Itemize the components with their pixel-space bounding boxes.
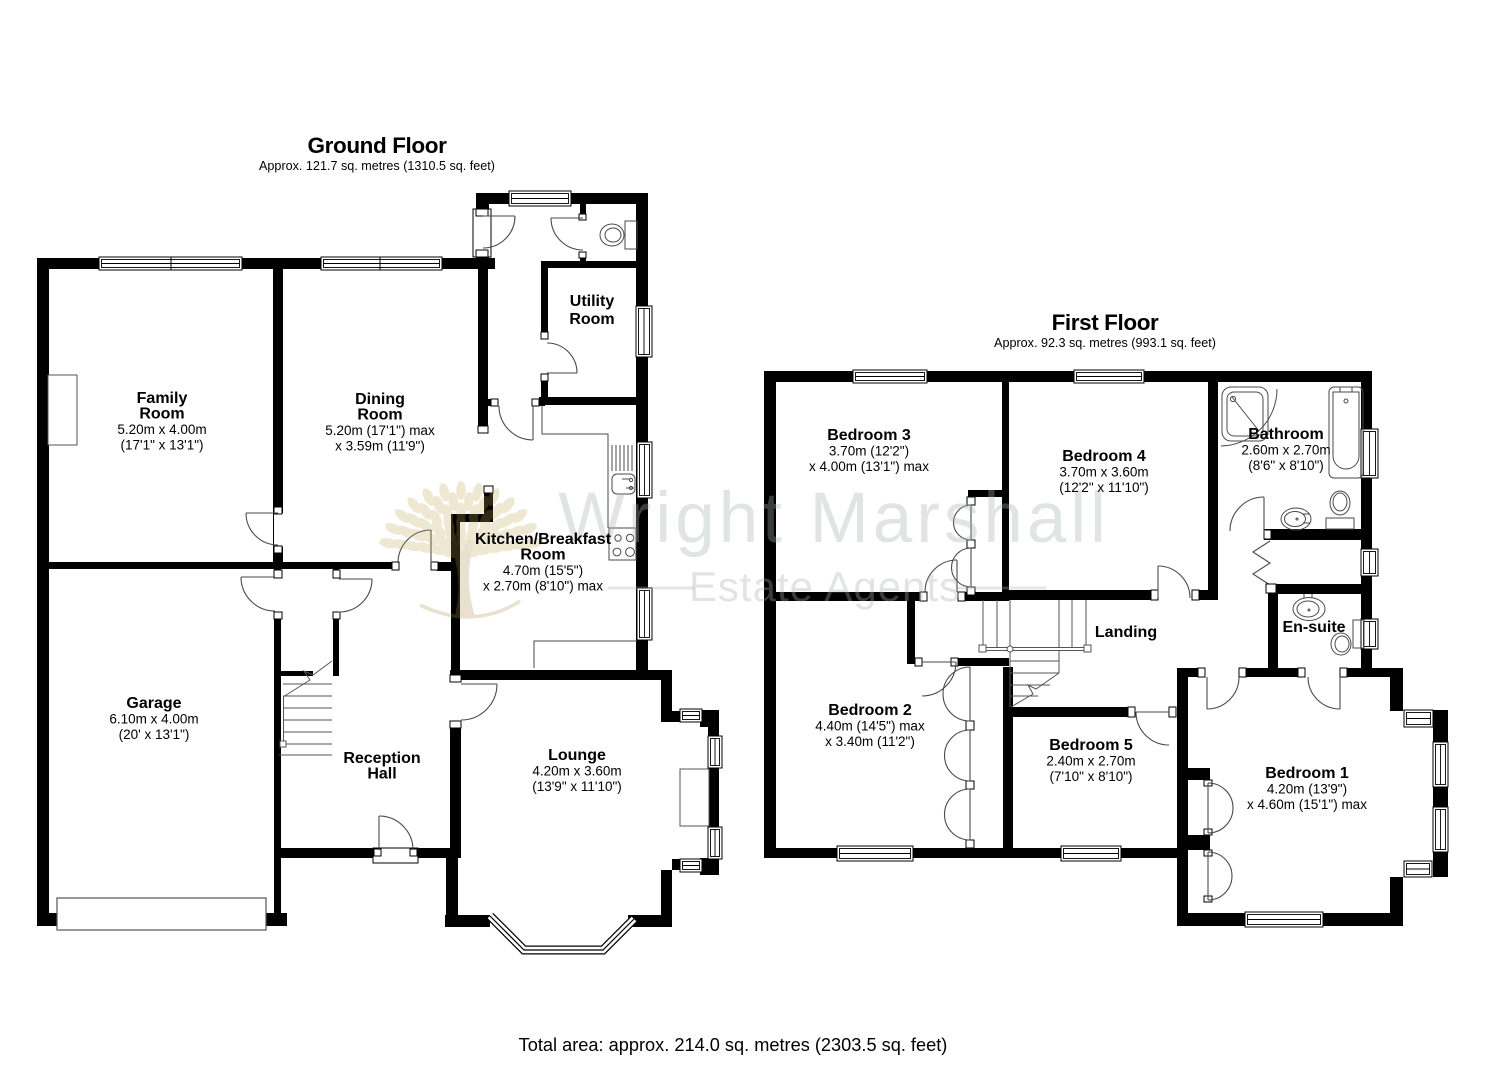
- svg-text:En-suite: En-suite: [1282, 619, 1345, 636]
- svg-text:Bedroom 1: Bedroom 1: [1265, 765, 1349, 782]
- svg-text:4.20m x 3.60m: 4.20m x 3.60m: [532, 764, 621, 779]
- svg-text:Hall: Hall: [367, 766, 396, 783]
- svg-text:Bathroom: Bathroom: [1248, 426, 1324, 443]
- svg-text:3.70m (12'2"): 3.70m (12'2"): [829, 444, 909, 459]
- svg-text:Utility: Utility: [570, 293, 615, 310]
- svg-text:x 4.00m (13'1") max: x 4.00m (13'1") max: [809, 459, 929, 474]
- svg-text:Reception: Reception: [343, 750, 420, 767]
- svg-text:(7'10" x 8'10"): (7'10" x 8'10"): [1049, 769, 1132, 784]
- svg-text:Bedroom 4: Bedroom 4: [1062, 448, 1146, 465]
- svg-text:Ground Floor: Ground Floor: [308, 133, 448, 158]
- svg-text:(13'9" x 11'10"): (13'9" x 11'10"): [532, 779, 622, 794]
- svg-text:4.40m (14'5") max: 4.40m (14'5") max: [815, 719, 925, 734]
- svg-text:2.40m x 2.70m: 2.40m x 2.70m: [1046, 754, 1135, 769]
- svg-text:Total area: approx. 214.0 sq.: Total area: approx. 214.0 sq. metres (23…: [519, 1035, 948, 1055]
- svg-text:Wright Marshall: Wright Marshall: [558, 479, 1110, 558]
- svg-text:5.20m (17'1") max: 5.20m (17'1") max: [325, 423, 435, 438]
- svg-text:(17'1" x 13'1"): (17'1" x 13'1"): [120, 438, 203, 453]
- svg-text:Approx. 92.3 sq. metres (993.1: Approx. 92.3 sq. metres (993.1 sq. feet): [994, 336, 1216, 350]
- svg-text:Kitchen/Breakfast: Kitchen/Breakfast: [475, 531, 612, 548]
- svg-text:Estate Agents: Estate Agents: [689, 563, 961, 610]
- svg-text:Bedroom 2: Bedroom 2: [828, 702, 912, 719]
- svg-text:Landing: Landing: [1095, 624, 1157, 641]
- svg-text:4.70m (15'5"): 4.70m (15'5"): [503, 563, 583, 578]
- svg-text:Dining: Dining: [355, 391, 405, 408]
- svg-text:Room: Room: [520, 547, 565, 564]
- svg-text:(8'6" x 8'10"): (8'6" x 8'10"): [1248, 458, 1324, 473]
- svg-text:(12'2" x 11'10"): (12'2" x 11'10"): [1059, 480, 1149, 495]
- svg-text:Room: Room: [569, 311, 614, 328]
- svg-text:(20' x 13'1"): (20' x 13'1"): [119, 727, 190, 742]
- svg-text:2.60m x 2.70m: 2.60m x 2.70m: [1241, 443, 1330, 458]
- svg-text:x 4.60m (15'1") max: x 4.60m (15'1") max: [1247, 797, 1367, 812]
- svg-text:x 3.59m (11'9"): x 3.59m (11'9"): [335, 439, 425, 454]
- svg-text:6.10m x 4.00m: 6.10m x 4.00m: [109, 712, 198, 727]
- svg-text:Room: Room: [139, 406, 184, 423]
- svg-text:3.70m x 3.60m: 3.70m x 3.60m: [1059, 465, 1148, 480]
- svg-text:5.20m x 4.00m: 5.20m x 4.00m: [117, 422, 206, 437]
- svg-text:Room: Room: [357, 407, 402, 424]
- svg-text:Garage: Garage: [126, 695, 181, 712]
- svg-text:First Floor: First Floor: [1052, 310, 1159, 335]
- svg-text:x 2.70m (8'10") max: x 2.70m (8'10") max: [483, 579, 603, 594]
- svg-text:Approx. 121.7 sq. metres (1310: Approx. 121.7 sq. metres (1310.5 sq. fee…: [259, 159, 495, 173]
- svg-text:4.20m (13'9"): 4.20m (13'9"): [1267, 782, 1347, 797]
- svg-text:Bedroom 5: Bedroom 5: [1049, 737, 1133, 754]
- svg-text:Lounge: Lounge: [548, 747, 606, 764]
- svg-text:x 3.40m (11'2"): x 3.40m (11'2"): [825, 734, 915, 749]
- svg-text:Bedroom 3: Bedroom 3: [827, 427, 911, 444]
- svg-text:Family: Family: [137, 390, 188, 407]
